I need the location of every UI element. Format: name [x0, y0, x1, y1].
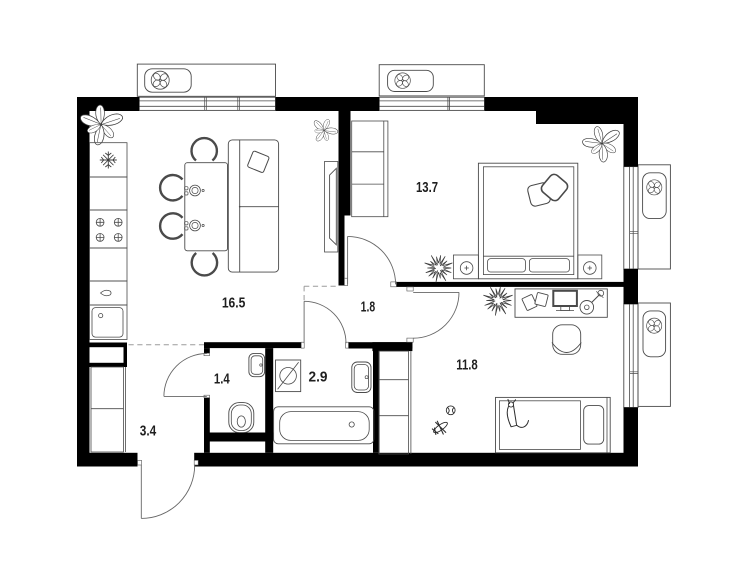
- svg-text:13.7: 13.7: [416, 180, 438, 196]
- svg-text:11.8: 11.8: [456, 358, 478, 374]
- svg-text:3.4: 3.4: [140, 424, 157, 440]
- svg-text:16.5: 16.5: [222, 296, 246, 312]
- svg-text:2.9: 2.9: [309, 370, 328, 386]
- svg-text:1.8: 1.8: [361, 299, 376, 315]
- svg-text:1.4: 1.4: [214, 372, 230, 388]
